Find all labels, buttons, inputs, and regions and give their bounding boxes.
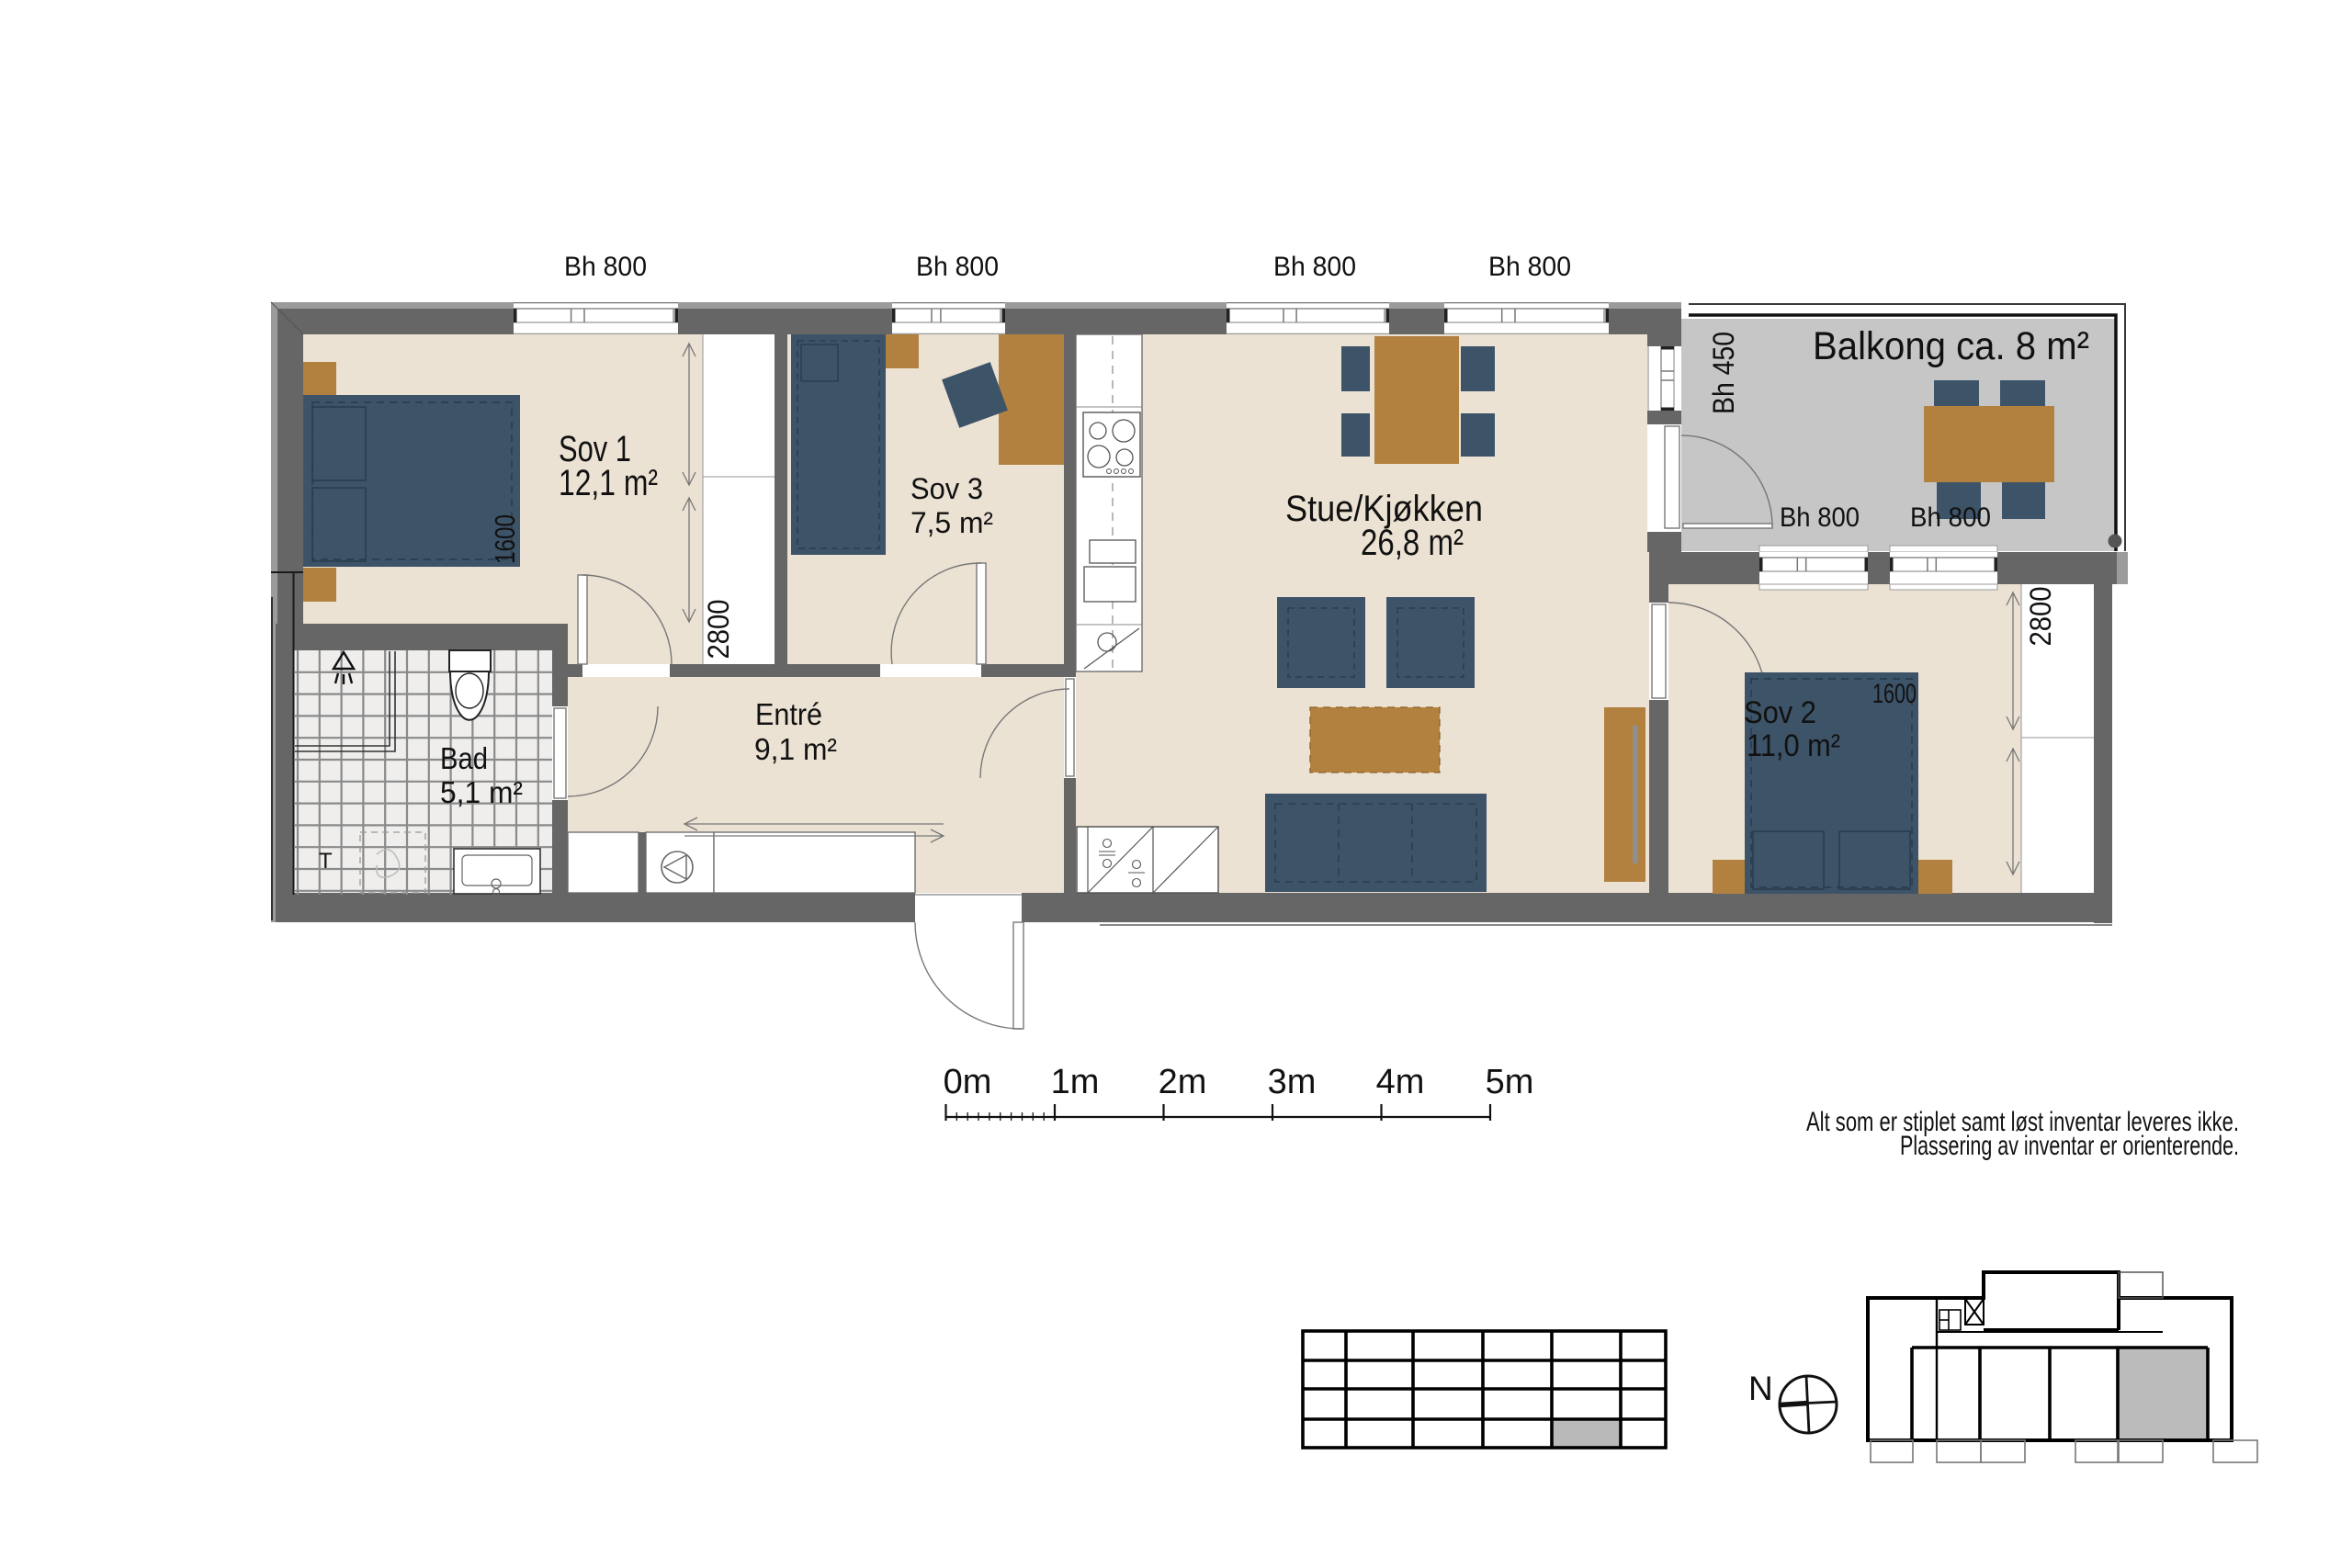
svg-text:2800: 2800 [702,600,735,660]
svg-text:Balkong ca. 8 m²: Balkong ca. 8 m² [1813,324,2089,368]
svg-text:11,0 m²: 11,0 m² [1747,728,1840,763]
svg-text:4m: 4m [1376,1063,1425,1101]
svg-text:1600: 1600 [1872,679,1917,709]
svg-text:Bad: Bad [440,741,488,775]
svg-text:5m: 5m [1486,1063,1534,1101]
svg-text:7,5 m²: 7,5 m² [910,506,993,539]
svg-text:Bh 800: Bh 800 [1780,502,1860,533]
svg-text:Entré: Entré [755,697,822,731]
svg-text:Sov 2: Sov 2 [1744,695,1816,730]
svg-text:Plassering av inventar er orie: Plassering av inventar er orienterende. [1900,1131,2239,1161]
svg-text:5,1 m²: 5,1 m² [440,775,523,809]
svg-text:Bh 800: Bh 800 [564,252,647,282]
svg-text:Bh 800: Bh 800 [1910,502,1991,533]
svg-text:1600: 1600 [489,514,521,564]
svg-text:2800: 2800 [2024,587,2057,647]
svg-text:Bh 450: Bh 450 [1707,332,1740,414]
svg-text:Bh 800: Bh 800 [916,252,999,282]
svg-text:Bh 800: Bh 800 [1488,252,1571,282]
svg-text:Sov 3: Sov 3 [910,472,983,505]
svg-text:12,1 m²: 12,1 m² [559,463,658,503]
svg-text:T: T [319,849,333,874]
svg-text:0m: 0m [944,1063,992,1101]
svg-text:1m: 1m [1051,1063,1100,1101]
svg-text:26,8 m²: 26,8 m² [1361,523,1464,563]
svg-text:N: N [1748,1370,1773,1407]
svg-text:2m: 2m [1159,1063,1207,1101]
svg-text:Bh 800: Bh 800 [1273,252,1356,282]
svg-text:3m: 3m [1268,1063,1317,1101]
svg-text:9,1 m²: 9,1 m² [754,732,837,766]
